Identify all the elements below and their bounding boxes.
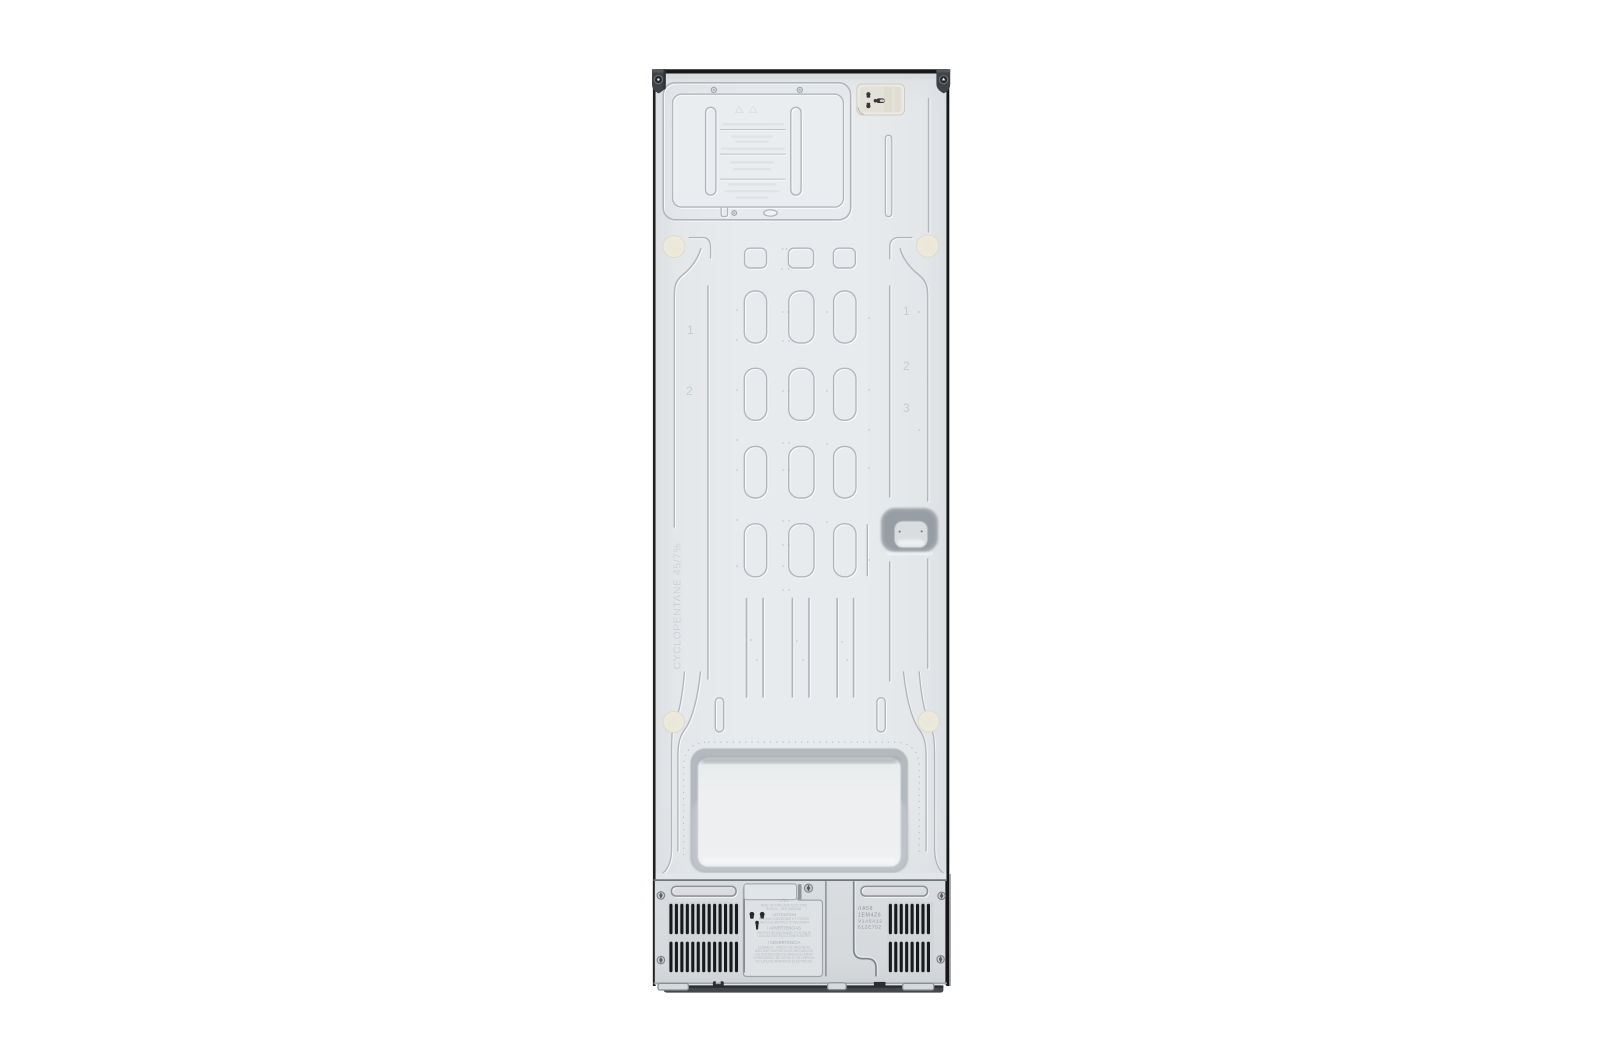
svg-text:V1A5A12: V1A5A12	[858, 919, 882, 925]
svg-text:1: 1	[903, 304, 910, 318]
svg-text:51ZE752: 51ZE752	[858, 925, 882, 931]
svg-text:! ADVERTENCIA: ! ADVERTENCIA	[768, 940, 801, 945]
svg-text:/IA58: /IA58	[858, 906, 873, 912]
svg-text:2: 2	[903, 359, 910, 373]
svg-text:LEA LAS INSTRUCCIONES ANTES: LEA LAS INSTRUCCIONES ANTES	[757, 934, 811, 938]
svg-text:2: 2	[686, 384, 693, 398]
svg-text:1EM4Z6: 1EM4Z6	[858, 912, 881, 918]
svg-text:NO UTILICE APARATOS ELECTRICOS: NO UTILICE APARATOS ELECTRICOS	[756, 959, 813, 963]
svg-text:! /\/ !: ! /\/ !	[780, 898, 788, 903]
svg-text:1: 1	[687, 323, 694, 337]
svg-text:SHOCK - SEE MANUAL: SHOCK - SEE MANUAL	[766, 907, 802, 911]
svg-text:LIRE LES INSTRUCTIONS AVANT: LIRE LES INSTRUCTIONS AVANT	[758, 920, 809, 924]
svg-text:CYCLOPENTANE 45/7%: CYCLOPENTANE 45/7%	[672, 543, 684, 670]
svg-text:3: 3	[903, 401, 910, 415]
